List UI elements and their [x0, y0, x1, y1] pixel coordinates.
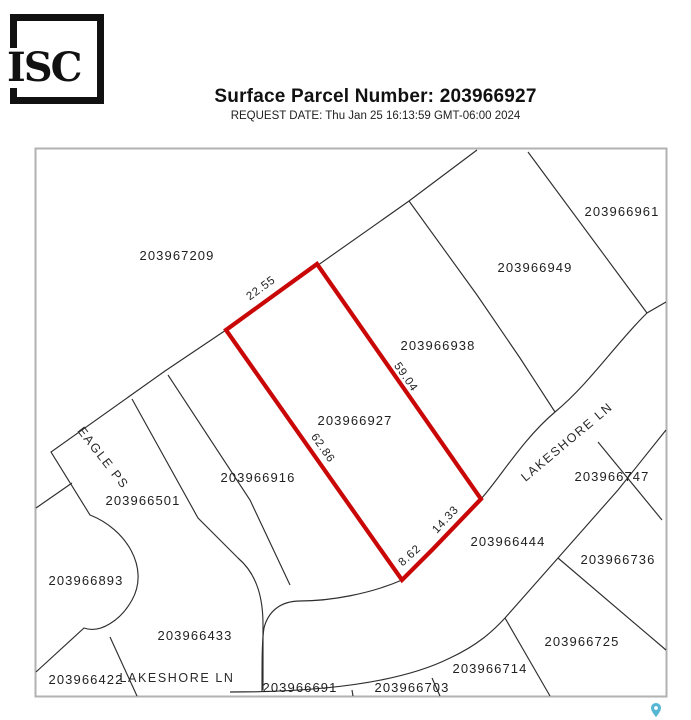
parcel-label: 203966747: [575, 469, 650, 484]
street-label-lakeshore-ln-lower: LAKESHORE LN: [119, 671, 234, 685]
parcel-label: 203966916: [221, 470, 296, 485]
parcel-label: 203966422: [49, 672, 124, 687]
parcel-label: 203966444: [471, 534, 546, 549]
parcel-label: 203966893: [49, 573, 124, 588]
parcel-label: 203966725: [545, 634, 620, 649]
parcel-label: 203966949: [498, 260, 573, 275]
parcel-label: 203966736: [581, 552, 656, 567]
parcel-map: 22.55 59.04 62.86 14.33 8.62 203967209 2…: [0, 0, 691, 720]
map-pin-icon: [651, 703, 661, 717]
selected-parcel-label: 203966927: [318, 413, 393, 428]
parcel-label: 203966938: [401, 338, 476, 353]
parcel-label: 203967209: [140, 248, 215, 263]
parcel-label: 203966501: [106, 493, 181, 508]
parcel-label: 203966961: [585, 204, 660, 219]
parcel-label: 203966691: [263, 680, 338, 695]
parcel-label: 203966433: [158, 628, 233, 643]
parcel-label: 203966714: [453, 661, 528, 676]
parcel-label: 203966703: [375, 680, 450, 695]
